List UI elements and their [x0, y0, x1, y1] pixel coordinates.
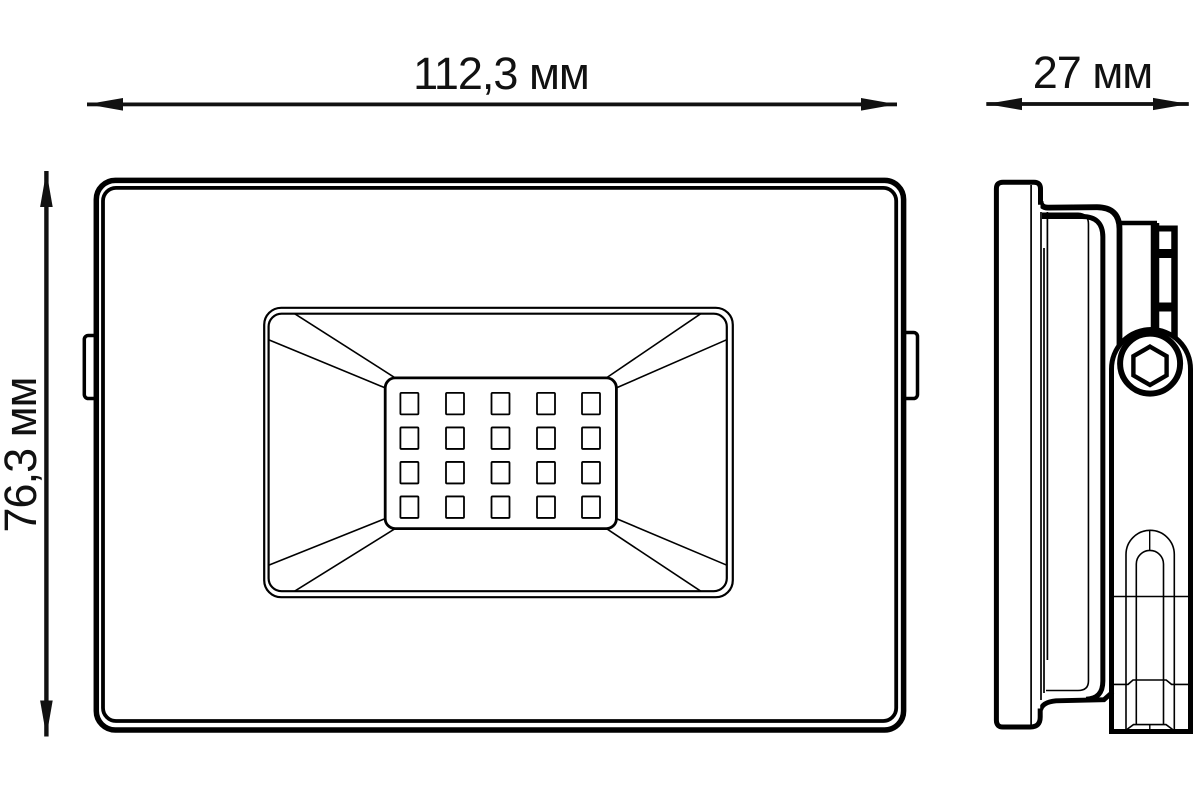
- svg-text:112,3 мм: 112,3 мм: [413, 48, 589, 99]
- svg-text:76,3 мм: 76,3 мм: [0, 378, 46, 533]
- svg-text:27 мм: 27 мм: [1033, 47, 1152, 98]
